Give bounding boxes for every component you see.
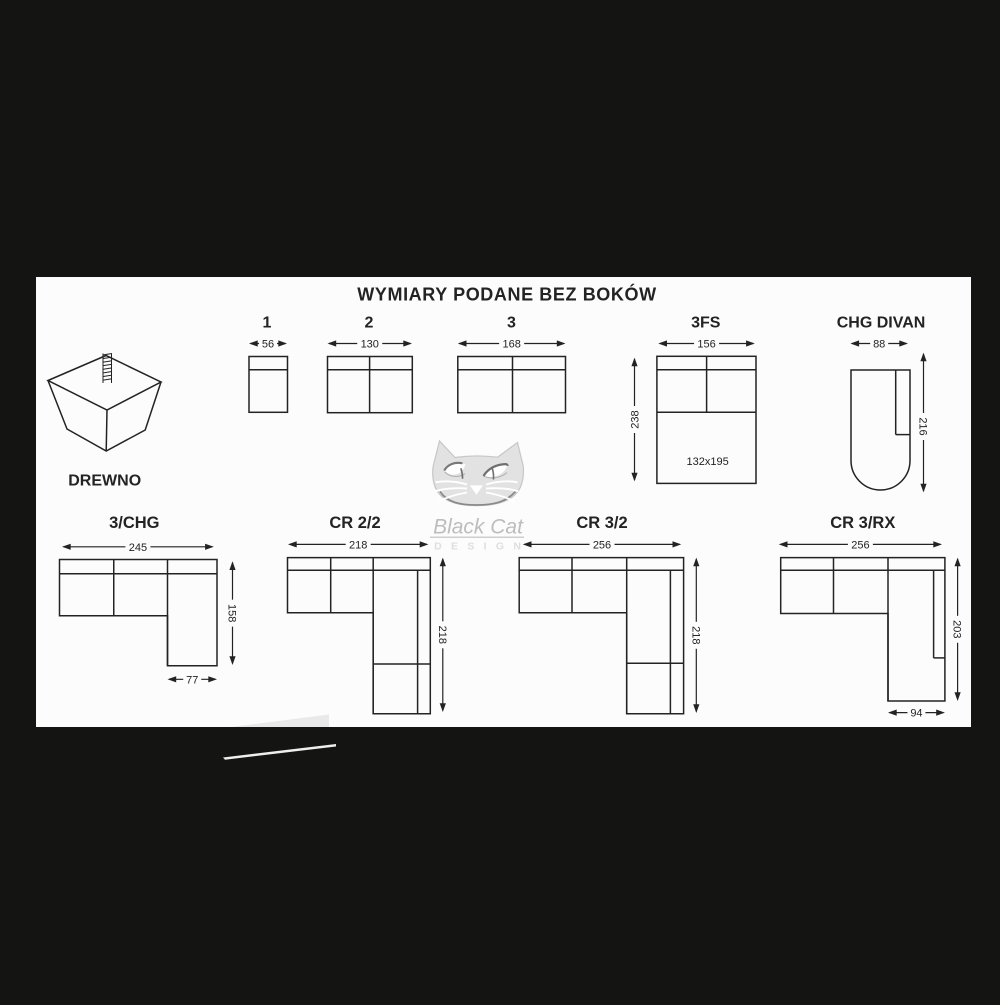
svg-text:158: 158 bbox=[226, 604, 238, 622]
svg-text:168: 168 bbox=[502, 339, 520, 351]
svg-text:156: 156 bbox=[697, 339, 715, 351]
svg-text:CR 3/RX: CR 3/RX bbox=[830, 514, 895, 532]
svg-text:256: 256 bbox=[851, 539, 869, 551]
svg-text:88: 88 bbox=[873, 339, 885, 351]
svg-text:218: 218 bbox=[349, 539, 367, 551]
svg-text:203: 203 bbox=[951, 620, 963, 638]
svg-text:94: 94 bbox=[910, 708, 922, 720]
svg-text:WYMIARY PODANE BEZ BOKÓW: WYMIARY PODANE BEZ BOKÓW bbox=[357, 284, 656, 305]
svg-text:218: 218 bbox=[689, 626, 701, 644]
svg-text:DESIGN: DESIGN bbox=[434, 541, 530, 553]
svg-text:CHG DIVAN: CHG DIVAN bbox=[837, 315, 926, 332]
svg-text:Black Cat: Black Cat bbox=[433, 516, 524, 539]
svg-text:CR 2/2: CR 2/2 bbox=[329, 514, 380, 532]
svg-text:77: 77 bbox=[186, 674, 198, 686]
svg-text:218: 218 bbox=[436, 626, 448, 644]
svg-text:2: 2 bbox=[365, 315, 374, 332]
svg-text:56: 56 bbox=[262, 339, 274, 351]
svg-text:132x195: 132x195 bbox=[686, 456, 728, 468]
svg-text:238: 238 bbox=[630, 410, 642, 428]
svg-text:3FS: 3FS bbox=[691, 315, 721, 332]
svg-text:1: 1 bbox=[263, 315, 272, 332]
svg-text:216: 216 bbox=[917, 417, 929, 435]
svg-text:3/CHG: 3/CHG bbox=[109, 514, 159, 532]
svg-text:130: 130 bbox=[361, 339, 379, 351]
svg-text:CR 3/2: CR 3/2 bbox=[576, 514, 627, 532]
svg-text:DREWNO: DREWNO bbox=[68, 473, 141, 490]
svg-text:245: 245 bbox=[129, 542, 147, 554]
svg-text:256: 256 bbox=[593, 539, 611, 551]
svg-text:3: 3 bbox=[507, 315, 516, 332]
